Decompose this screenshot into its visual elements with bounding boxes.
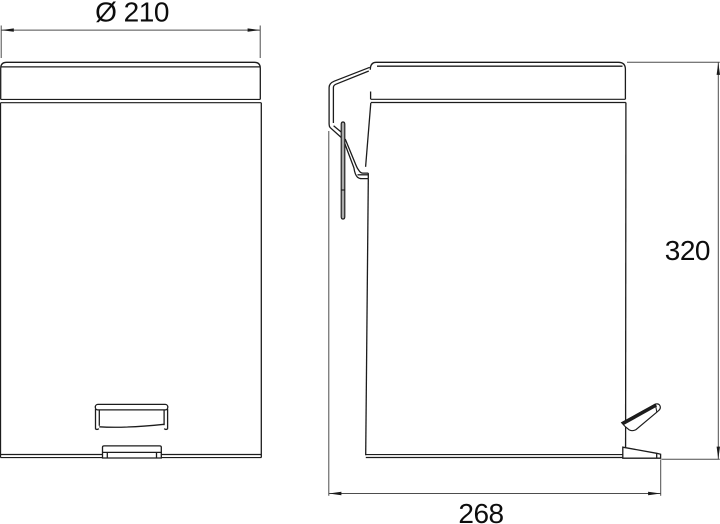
svg-text:320: 320: [665, 235, 710, 266]
svg-text:268: 268: [458, 498, 503, 524]
svg-text:Ø 210: Ø 210: [95, 0, 169, 28]
